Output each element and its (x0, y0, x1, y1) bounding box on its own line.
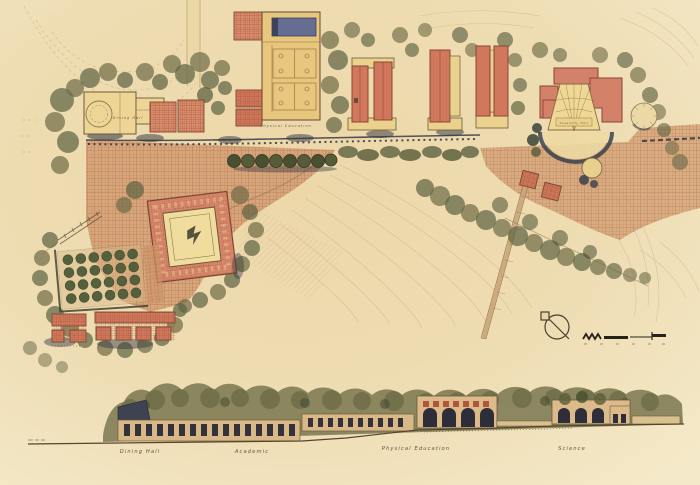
academic-cluster-c (476, 46, 508, 128)
section-gym-building (417, 396, 497, 428)
swimming-pool (272, 18, 316, 36)
round-pavilion (582, 158, 602, 178)
academic-cluster-b (428, 50, 462, 130)
courtyard-shadow (232, 253, 244, 279)
plan-label-assembly-hall: Assembly Hall (559, 121, 589, 125)
section-wall (497, 421, 552, 426)
section-label-science: Science (558, 446, 586, 452)
plan-label-physical-education: Physical Education (260, 124, 312, 128)
drawing-canvas: Dining Hall Physical Education (0, 0, 700, 485)
section-academic-building (302, 414, 414, 431)
section-right-wall (632, 416, 680, 424)
plan-label-dining-hall: Dining Hall (113, 116, 144, 120)
section-label-academic: Academic (234, 449, 269, 455)
section-label-physical-education: Physical Education (382, 446, 450, 452)
section-colonnade-building (118, 420, 300, 441)
round-garden (631, 103, 657, 130)
site-plan-drawing: Dining Hall Physical Education (0, 0, 700, 485)
section-label-dining-hall: Dining Hall (120, 449, 160, 455)
